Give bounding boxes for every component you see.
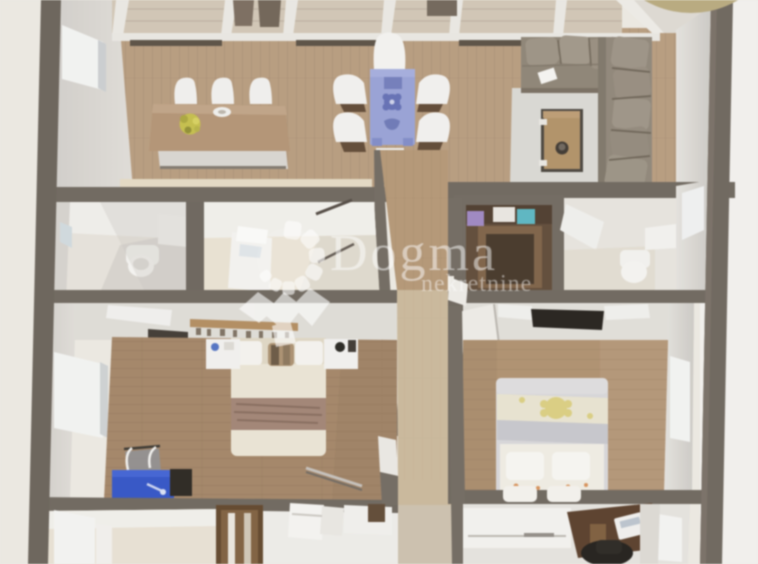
svg-text:nekretnine: nekretnine <box>421 271 532 297</box>
